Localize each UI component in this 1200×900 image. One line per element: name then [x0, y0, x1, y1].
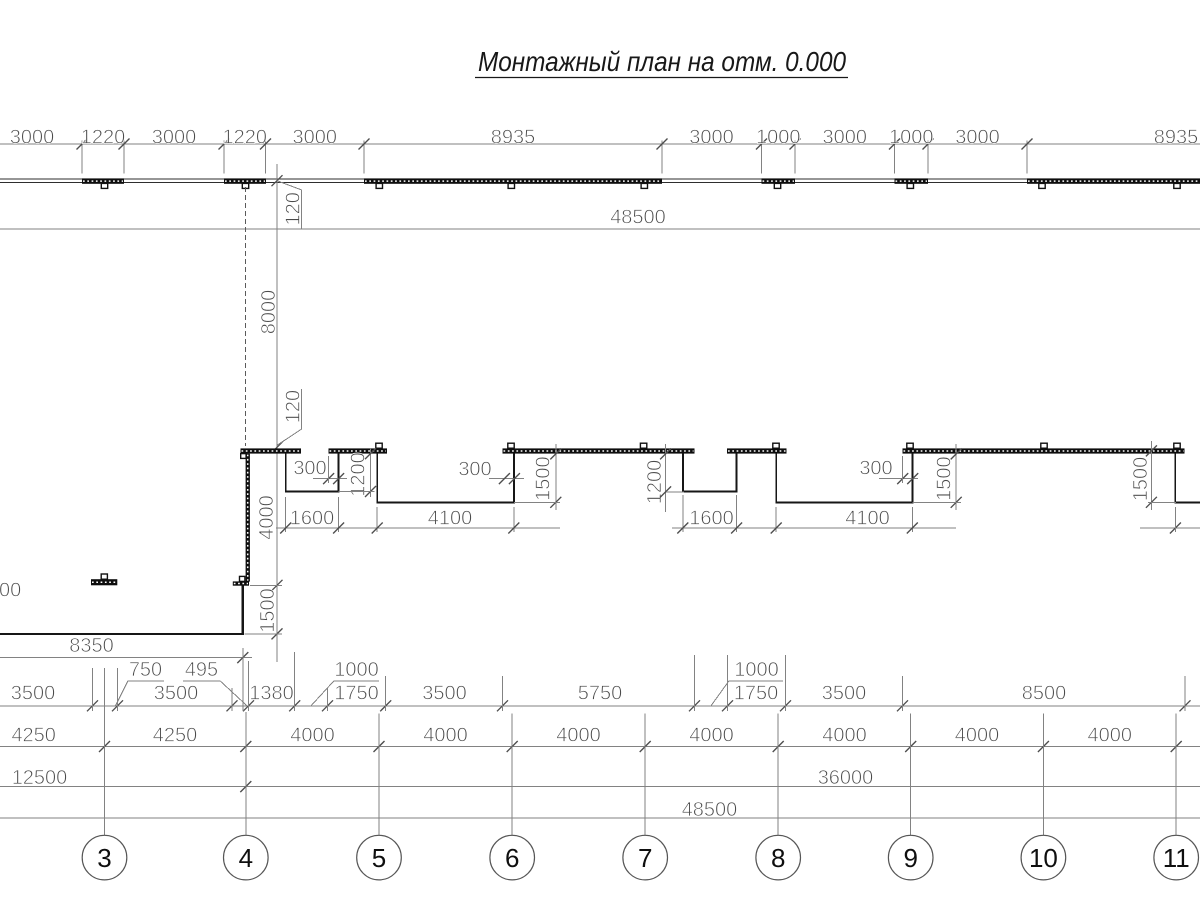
- svg-text:1220: 1220: [81, 126, 126, 148]
- svg-text:4000: 4000: [423, 724, 468, 746]
- svg-text:4000: 4000: [290, 724, 335, 746]
- svg-text:1500: 1500: [934, 456, 956, 501]
- svg-text:1500: 1500: [257, 588, 279, 633]
- svg-text:4000: 4000: [689, 724, 734, 746]
- svg-text:3000: 3000: [10, 126, 55, 148]
- svg-text:4250: 4250: [11, 724, 56, 746]
- svg-text:4: 4: [239, 843, 253, 873]
- svg-text:5: 5: [372, 843, 386, 873]
- svg-text:4100: 4100: [845, 508, 890, 530]
- svg-text:8500: 8500: [1022, 682, 1067, 704]
- svg-text:1000: 1000: [889, 126, 934, 148]
- svg-text:3000: 3000: [152, 126, 197, 148]
- svg-text:12500: 12500: [12, 767, 68, 789]
- svg-text:9: 9: [903, 843, 917, 873]
- svg-text:6: 6: [505, 843, 519, 873]
- svg-text:3000: 3000: [293, 126, 338, 148]
- svg-text:Монтажный план на отм. 0.000: Монтажный план на отм. 0.000: [478, 46, 846, 77]
- svg-text:1500: 1500: [1130, 457, 1152, 502]
- svg-text:10: 10: [1029, 843, 1058, 873]
- svg-text:1600: 1600: [290, 508, 335, 530]
- svg-text:495: 495: [185, 659, 218, 681]
- svg-text:4100: 4100: [428, 508, 473, 530]
- svg-text:3000: 3000: [823, 126, 868, 148]
- svg-text:8935: 8935: [491, 126, 536, 148]
- svg-text:3500: 3500: [822, 682, 867, 704]
- svg-text:36000: 36000: [818, 767, 874, 789]
- svg-text:4000: 4000: [955, 724, 1000, 746]
- svg-text:1750: 1750: [734, 682, 779, 704]
- svg-text:1750: 1750: [334, 682, 379, 704]
- svg-text:3500: 3500: [11, 682, 56, 704]
- svg-text:300: 300: [458, 459, 491, 481]
- svg-text:1500: 1500: [533, 456, 555, 501]
- svg-text:1200: 1200: [348, 452, 370, 497]
- svg-text:1000: 1000: [334, 659, 379, 681]
- svg-text:48500: 48500: [682, 799, 738, 821]
- svg-text:11: 11: [1163, 843, 1190, 873]
- svg-text:750: 750: [129, 659, 162, 681]
- svg-text:4000: 4000: [822, 724, 867, 746]
- svg-text:300: 300: [859, 458, 892, 480]
- svg-text:8935: 8935: [1154, 126, 1199, 148]
- svg-text:5750: 5750: [578, 682, 623, 704]
- svg-text:4000: 4000: [256, 495, 278, 540]
- svg-text:3000: 3000: [689, 126, 734, 148]
- svg-text:1380: 1380: [249, 682, 294, 704]
- svg-text:4000: 4000: [556, 724, 601, 746]
- svg-text:1000: 1000: [734, 659, 779, 681]
- svg-text:8000: 8000: [258, 290, 280, 335]
- svg-text:3000: 3000: [0, 580, 21, 602]
- svg-text:3500: 3500: [422, 682, 467, 704]
- svg-text:1000: 1000: [756, 126, 801, 148]
- svg-text:300: 300: [293, 458, 326, 480]
- svg-text:48500: 48500: [610, 207, 666, 229]
- svg-text:3000: 3000: [955, 126, 1000, 148]
- svg-text:4000: 4000: [1088, 724, 1133, 746]
- svg-text:7: 7: [638, 843, 652, 873]
- svg-text:8350: 8350: [69, 635, 114, 657]
- svg-text:1200: 1200: [644, 460, 666, 505]
- svg-text:8: 8: [771, 843, 785, 873]
- svg-text:4250: 4250: [153, 724, 198, 746]
- svg-text:3500: 3500: [154, 682, 199, 704]
- svg-text:1220: 1220: [223, 126, 268, 148]
- svg-text:3: 3: [97, 843, 111, 873]
- svg-text:1600: 1600: [689, 508, 734, 530]
